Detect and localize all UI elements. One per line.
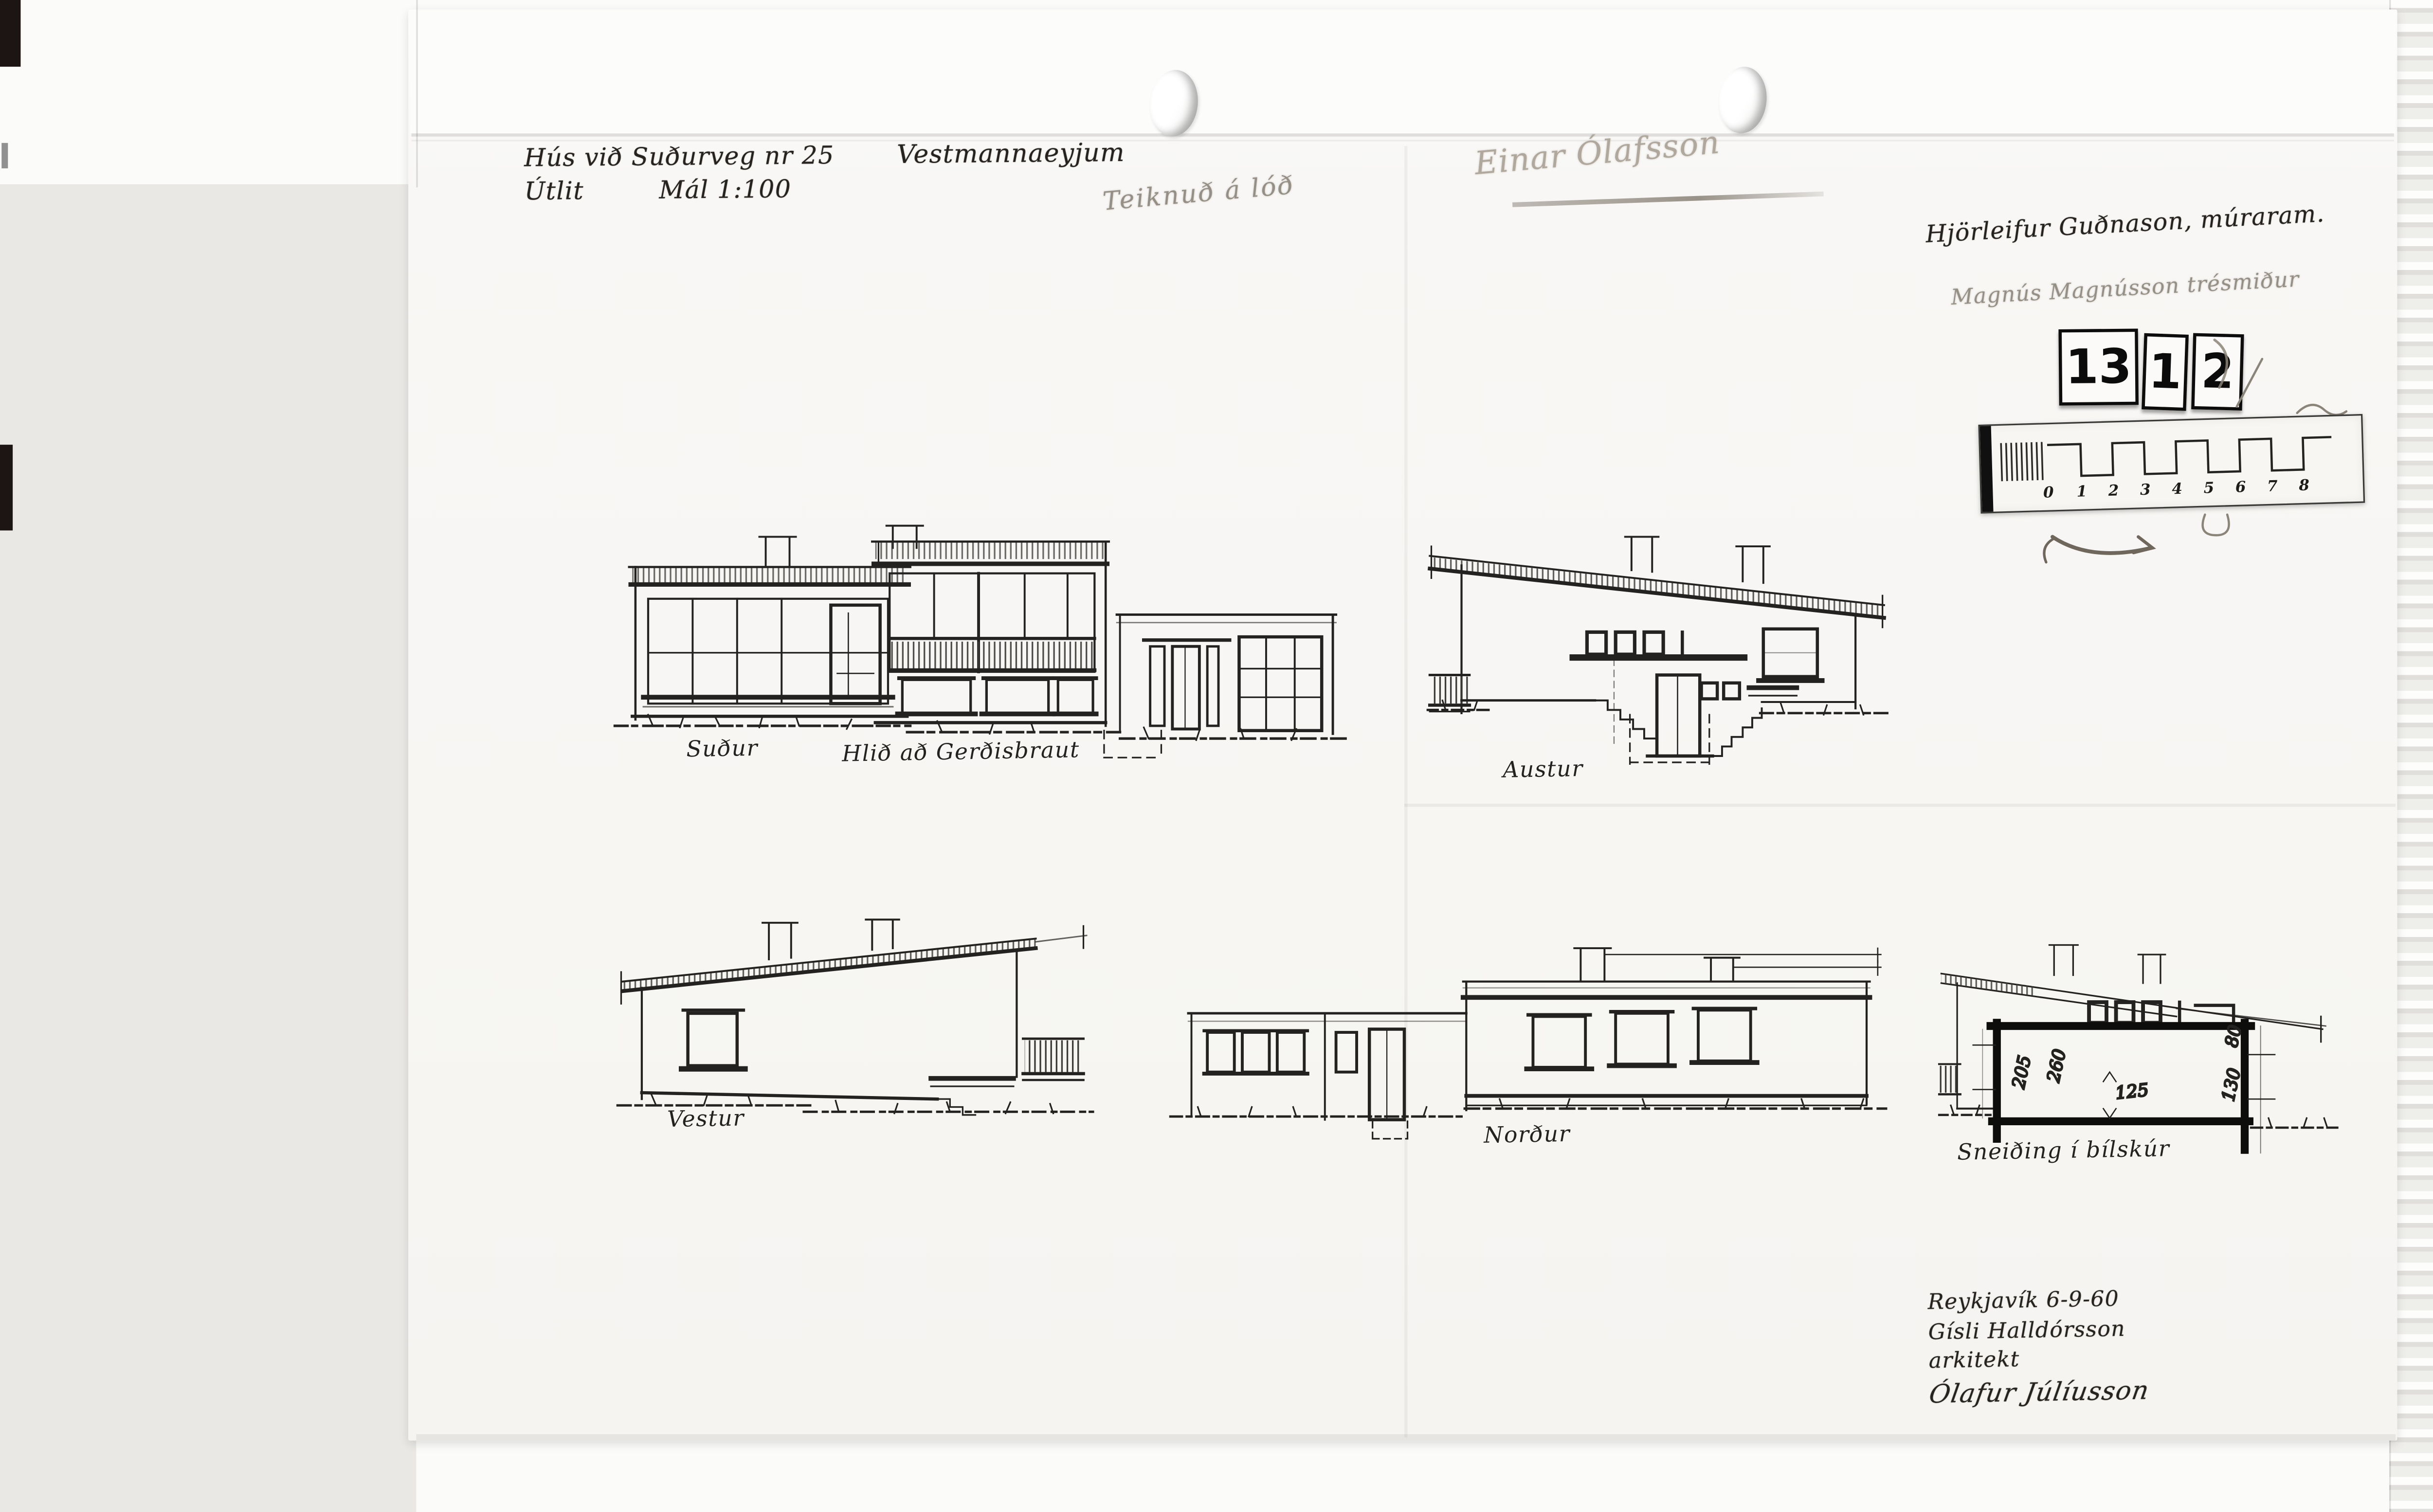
label-east: Austur — [1503, 757, 1583, 784]
photo-scale-bar: 0 1 2 3 4 5 6 7 8 — [1978, 414, 2365, 514]
signature-block: Reykjavík 6-9-60 Gísli Halldórsson arkit… — [1927, 1284, 2149, 1412]
paper-bottom-shadow — [416, 1434, 2396, 1440]
footer-signature: Ólafur Júlíusson — [1926, 1373, 2152, 1412]
north-elevation-drawing — [1169, 940, 1888, 1144]
title-block: Hús við Suðurveg nr 25 Vestmannaeyjum Út… — [524, 137, 1126, 207]
scan-artifact-mark — [0, 0, 20, 67]
dim-260: 260 — [2044, 1047, 2070, 1085]
window — [682, 1010, 745, 1069]
chimneys — [1625, 537, 1770, 583]
scale-mark: 7 — [2267, 477, 2278, 495]
window — [1759, 629, 1822, 681]
scale-mark: 5 — [2203, 479, 2215, 497]
south-elevation-drawing — [608, 521, 1352, 762]
scale-mark: 1 — [2076, 483, 2088, 501]
label-west: Vestur — [667, 1106, 745, 1133]
horizontal-crease — [1404, 804, 2396, 807]
label-south-street-side: Hlið að Gerðisbraut — [842, 738, 1080, 768]
dim-205: 205 — [2009, 1054, 2035, 1091]
scale-mark: 4 — [2172, 480, 2183, 498]
scale-mark: 6 — [2235, 478, 2246, 496]
footer-architect: Gísli Halldórsson — [1928, 1314, 2148, 1348]
title-view-type: Útlit — [524, 177, 584, 206]
main-wing — [872, 541, 1108, 726]
dim-125: 125 — [2114, 1080, 2149, 1103]
footer-place-date: Reykjavík 6-9-60 — [1927, 1284, 2148, 1318]
shed-roof — [1430, 546, 1884, 627]
title-location: Vestmannaeyjum — [897, 137, 1125, 169]
garage-wing — [1117, 614, 1336, 734]
railing-left — [1938, 1064, 1961, 1094]
scale-mark: 8 — [2298, 476, 2310, 494]
ground-line — [1169, 1099, 1888, 1116]
main-block — [1463, 982, 1870, 1110]
sunken-entrance — [1462, 659, 1856, 764]
label-south: Suður — [686, 737, 759, 763]
scale-bar-end-block — [1980, 426, 1994, 512]
cover-sheet-band — [410, 10, 2396, 134]
section-dimensions: 205 260 125 130 80 — [2009, 1023, 2246, 1103]
east-elevation-drawing — [1427, 524, 1890, 772]
scanner-background — [0, 184, 416, 1512]
sheet-fold-line — [412, 133, 2394, 137]
railing — [1023, 1039, 1083, 1080]
scale-mark: 2 — [2107, 482, 2119, 500]
label-north: Norður — [1484, 1122, 1571, 1149]
garage-section-drawing: 205 260 125 130 80 — [1938, 931, 2339, 1166]
chimneys-and-dimension-lines — [1574, 948, 1881, 982]
west-elevation-drawing — [617, 915, 1096, 1134]
scan-artifact-mark — [1, 143, 8, 168]
scan-artifact-mark — [0, 445, 13, 530]
label-garage-section: Sneiðing í bílskúr — [1957, 1137, 2170, 1166]
scanned-drawing-sheet: Hús við Suðurveg nr 25 Vestmannaeyjum Út… — [0, 0, 2433, 1512]
vertical-crease — [1404, 146, 1408, 1437]
canopy-and-clerestory — [1573, 632, 1744, 657]
garage-block — [1188, 1013, 1466, 1140]
scale-mark: 3 — [2140, 481, 2151, 499]
balcony-railing — [1430, 675, 1470, 711]
scale-mark: 0 — [2043, 484, 2054, 502]
scale-bar-graphic: 0 1 2 3 4 5 6 7 8 — [1980, 416, 2357, 506]
title-scale: Mál 1:100 — [659, 175, 791, 204]
title-text: Hús við Suðurveg nr 25 — [524, 141, 835, 172]
chimneys — [763, 919, 899, 959]
under-sheet-edge — [416, 0, 418, 187]
left-wing — [629, 567, 910, 719]
footer-role: arkitekt — [1928, 1344, 2149, 1377]
